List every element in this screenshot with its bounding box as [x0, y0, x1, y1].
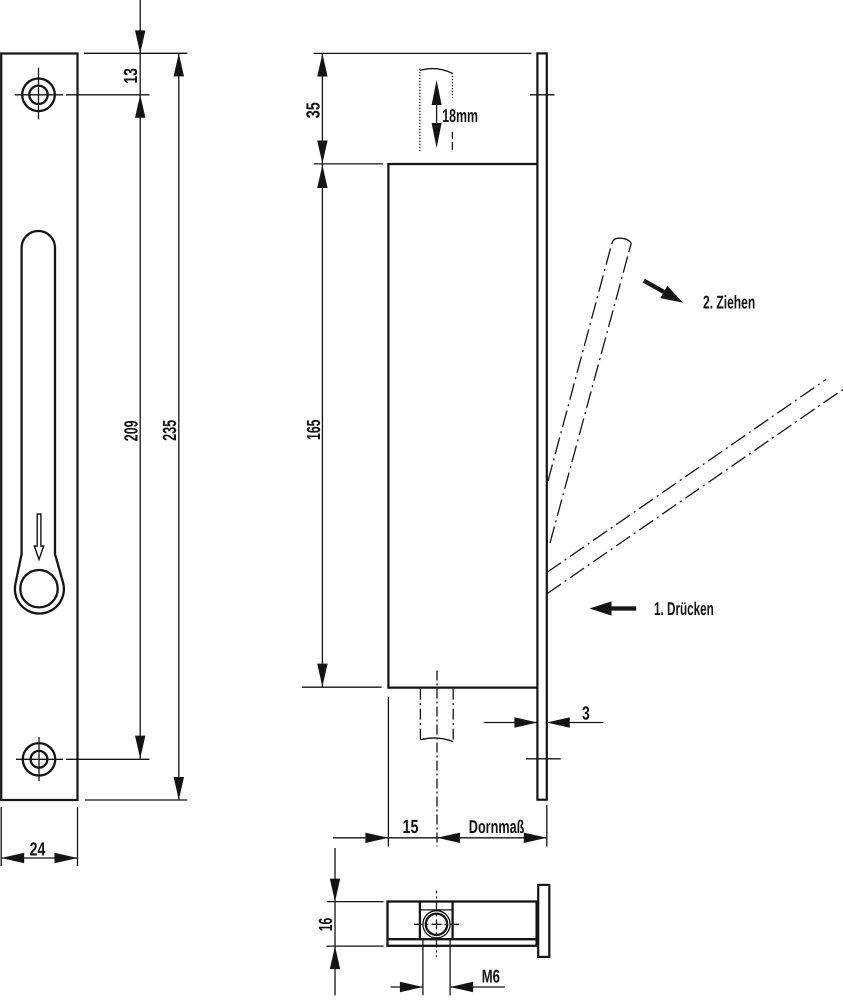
svg-text:2. Ziehen: 2. Ziehen — [703, 291, 755, 312]
svg-text:M6: M6 — [482, 965, 500, 986]
svg-text:Dornmaß: Dornmaß — [469, 816, 525, 837]
svg-text:3: 3 — [582, 704, 590, 725]
svg-text:16: 16 — [316, 918, 337, 932]
svg-text:235: 235 — [160, 420, 181, 441]
svg-text:35: 35 — [304, 102, 325, 118]
svg-text:165: 165 — [304, 419, 325, 440]
svg-text:13: 13 — [121, 68, 142, 84]
svg-text:18mm: 18mm — [442, 105, 478, 126]
svg-text:209: 209 — [122, 420, 143, 441]
svg-text:1. Drücken: 1. Drücken — [654, 598, 714, 619]
svg-text:24: 24 — [30, 840, 46, 861]
svg-text:15: 15 — [403, 817, 419, 838]
